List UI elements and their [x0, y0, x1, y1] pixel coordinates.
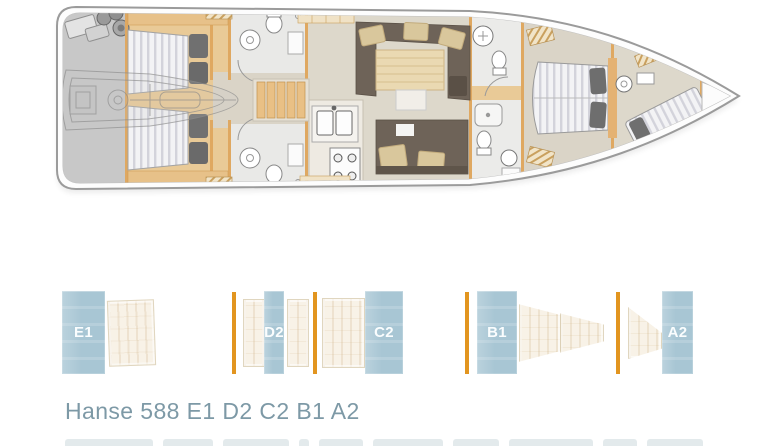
- option-b-alternative-1[interactable]: [519, 301, 561, 365]
- zone-divider: [616, 292, 620, 374]
- truncated-text-line: [65, 439, 745, 446]
- option-d-alternative-left[interactable]: [243, 299, 265, 367]
- salon-sofa-lower: [376, 120, 468, 174]
- option-b1-selected[interactable]: B1: [477, 291, 517, 374]
- option-d2-label: D2: [264, 324, 284, 341]
- zone-divider: [313, 292, 317, 374]
- option-a-alternative[interactable]: [628, 307, 662, 359]
- option-e-alternative[interactable]: [107, 299, 156, 367]
- option-c-alternative[interactable]: [322, 298, 365, 368]
- configuration-title: Hanse 588 E1 D2 C2 B1 A2: [65, 398, 360, 425]
- layout-selector: E1 D2 C2 B1 A2: [0, 291, 783, 375]
- yacht-floorplan: [0, 0, 783, 212]
- option-b1-label: B1: [487, 324, 507, 341]
- zone-divider: [232, 292, 236, 374]
- companionway-stairs: [253, 79, 309, 121]
- option-a2-selected[interactable]: A2: [662, 291, 693, 374]
- option-e1-label: E1: [74, 324, 93, 341]
- floorplan-svg: [0, 0, 783, 212]
- option-a2-label: A2: [668, 324, 688, 341]
- zone-divider: [465, 292, 469, 374]
- option-b-alternative-2[interactable]: [560, 305, 604, 361]
- option-e1-selected[interactable]: E1: [62, 291, 105, 374]
- option-d-alternative-right[interactable]: [287, 299, 309, 367]
- option-c2-selected[interactable]: C2: [365, 291, 403, 374]
- galley: [309, 100, 363, 188]
- option-d2-selected[interactable]: D2: [264, 291, 284, 374]
- option-c2-label: C2: [374, 324, 394, 341]
